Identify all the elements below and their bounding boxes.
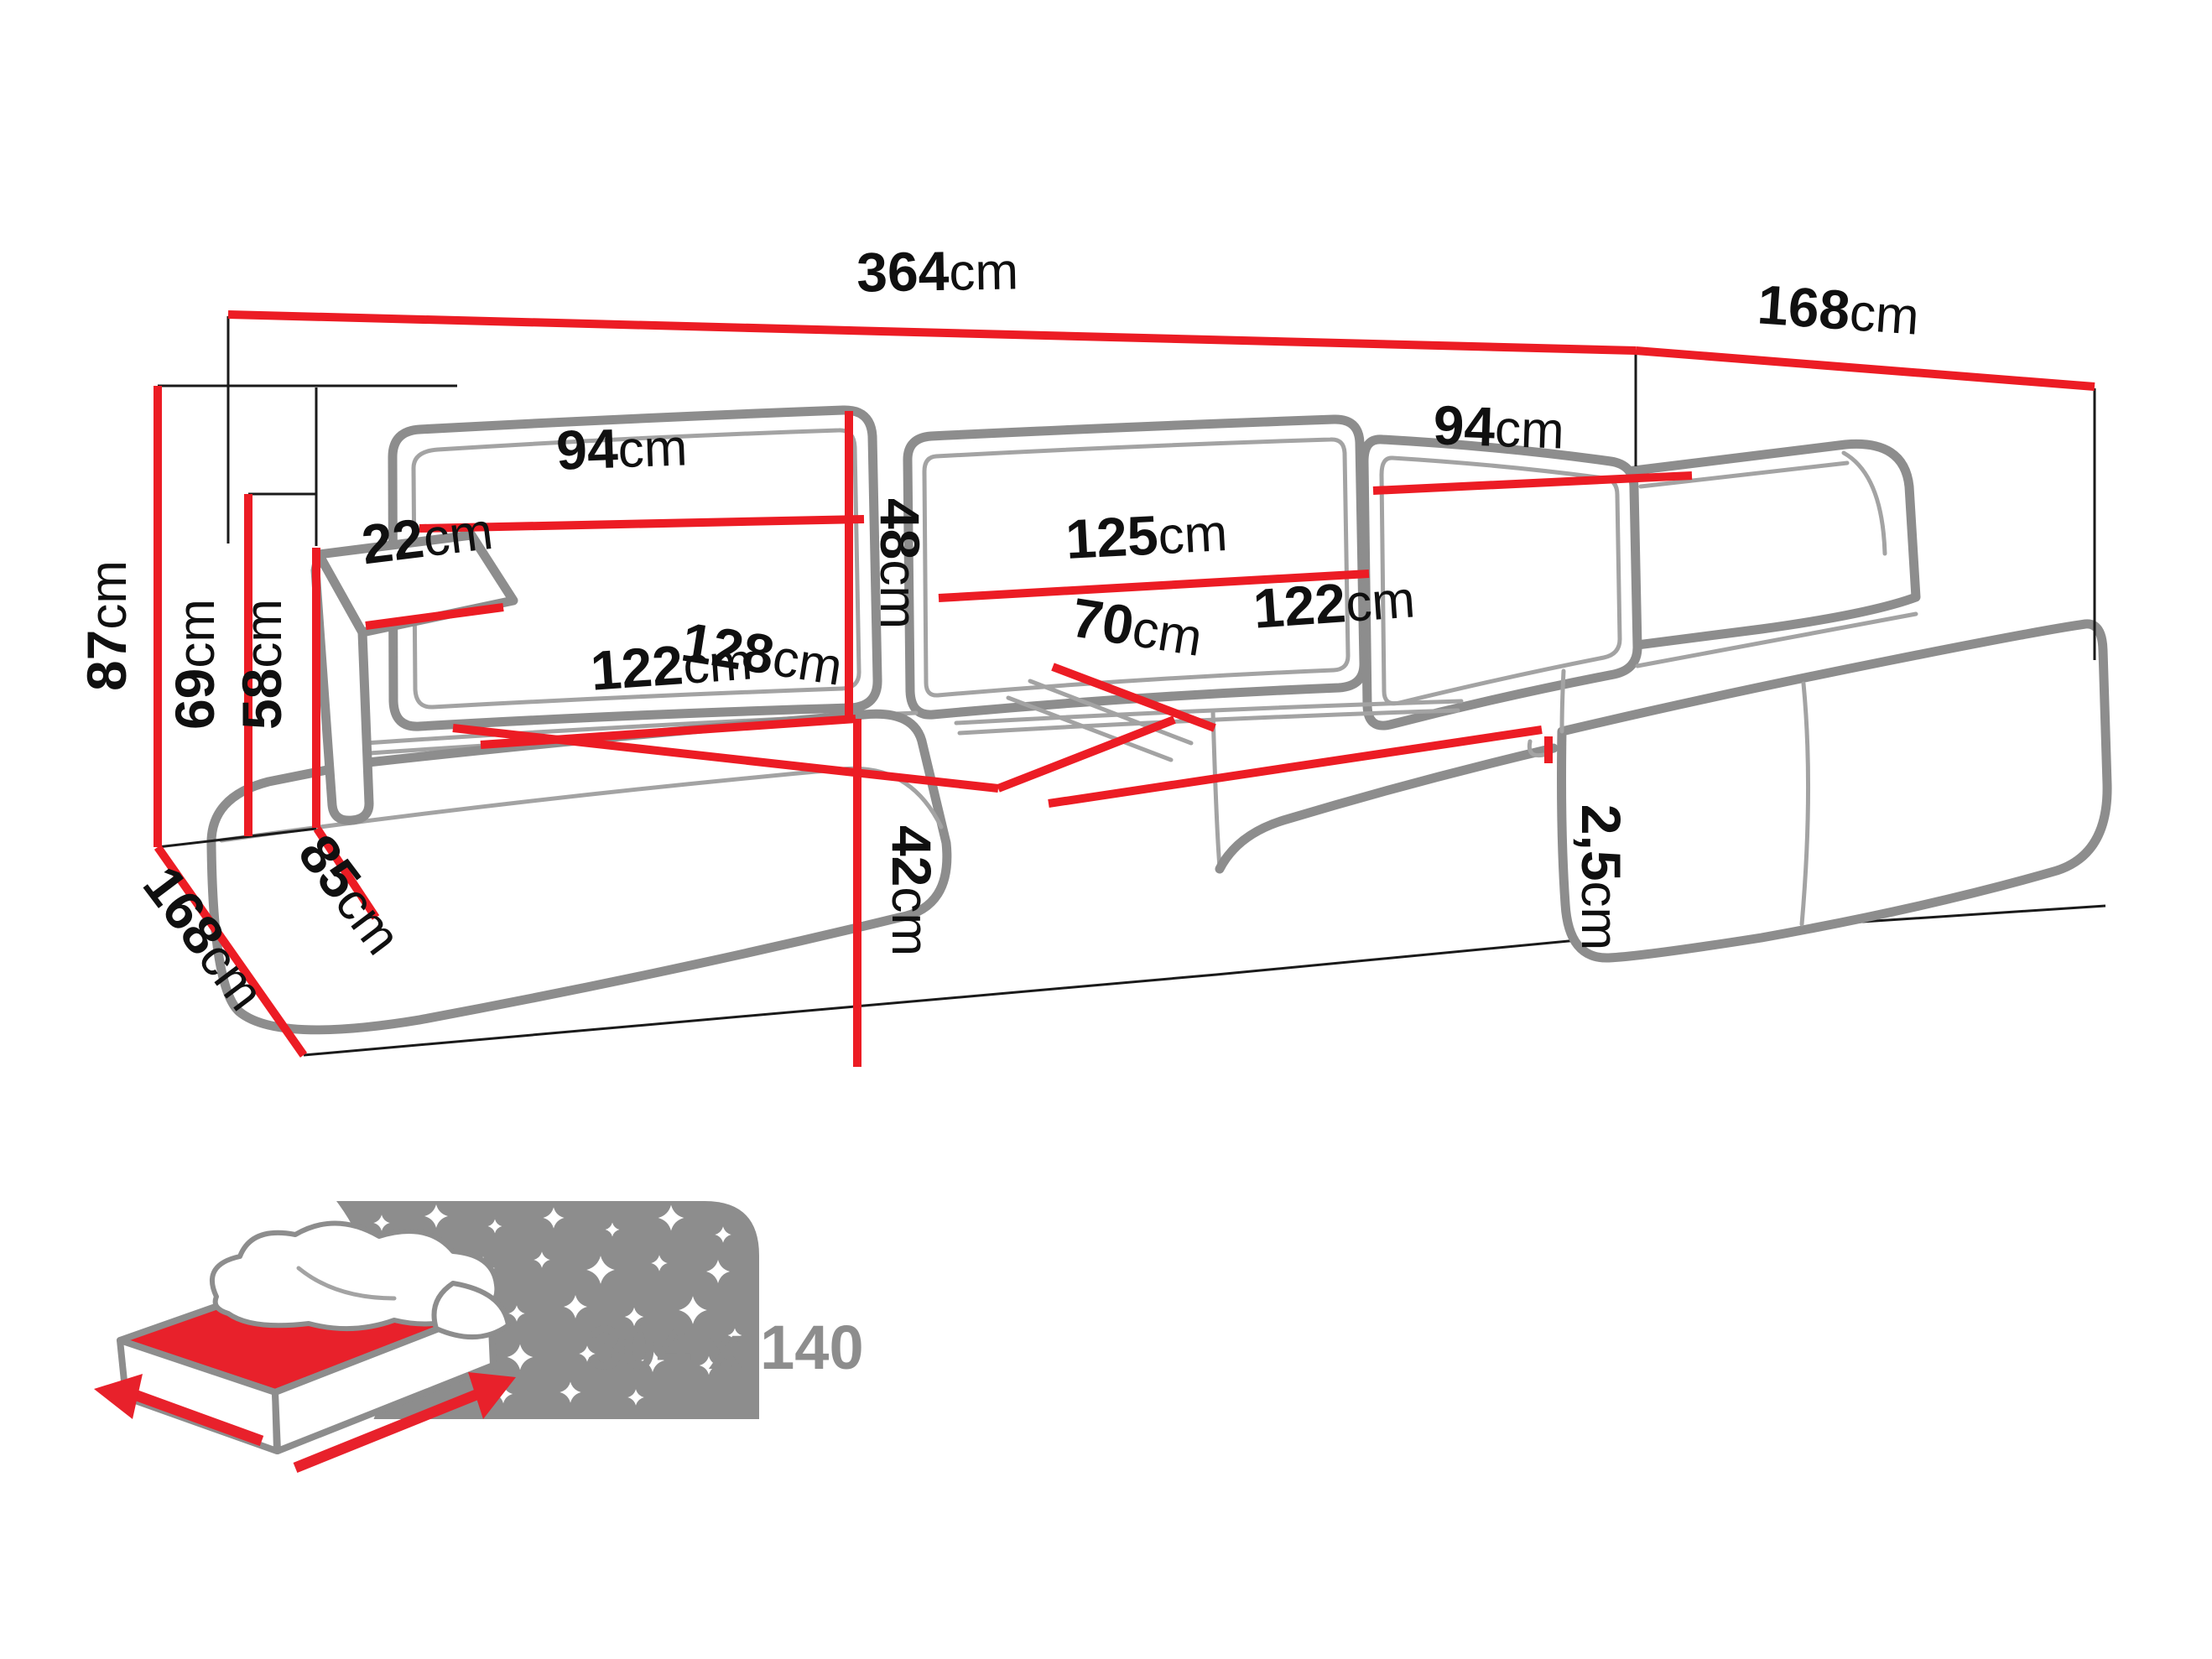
dim-label-armrest-height: 69cm [164, 599, 226, 730]
right-chaise [1562, 614, 2108, 958]
diagram-svg: 364cm 168cm 94cm 48cm 125cm 94cm 22cm 12… [0, 0, 2212, 1659]
dim-label-backrest-height: 48cm [869, 498, 931, 629]
dim-label-seat-left-width: 122cm [589, 628, 754, 701]
sleeping-size-label: 304 x 140 [587, 1313, 863, 1382]
dim-label-seat-back-height: 58cm [231, 599, 293, 730]
dim-label-backrest-left: 94cm [555, 414, 689, 481]
dim-label-height-total: 87cm [75, 560, 138, 691]
dim-label-seat-height: 42cm [881, 825, 943, 956]
sofa-dimensions-diagram: 364cm 168cm 94cm 48cm 125cm 94cm 22cm 12… [0, 0, 2212, 1659]
dim-line-depth-right [1636, 351, 2095, 387]
dim-label-backrest-middle: 125cm [1064, 500, 1229, 570]
dim-label-clearance: 2,5cm [1570, 804, 1632, 950]
backrest-middle-cushion [908, 419, 1364, 715]
dim-label-backrest-right: 94cm [1433, 393, 1566, 460]
dim-line-total-width [228, 315, 1636, 351]
dim-label-depth-right: 168cm [1756, 273, 1921, 346]
dim-label-seat-middle-width: 122cm [1252, 566, 1417, 639]
width-arrow-head [94, 1374, 143, 1419]
dim-label-total-width: 364cm [856, 238, 1019, 303]
